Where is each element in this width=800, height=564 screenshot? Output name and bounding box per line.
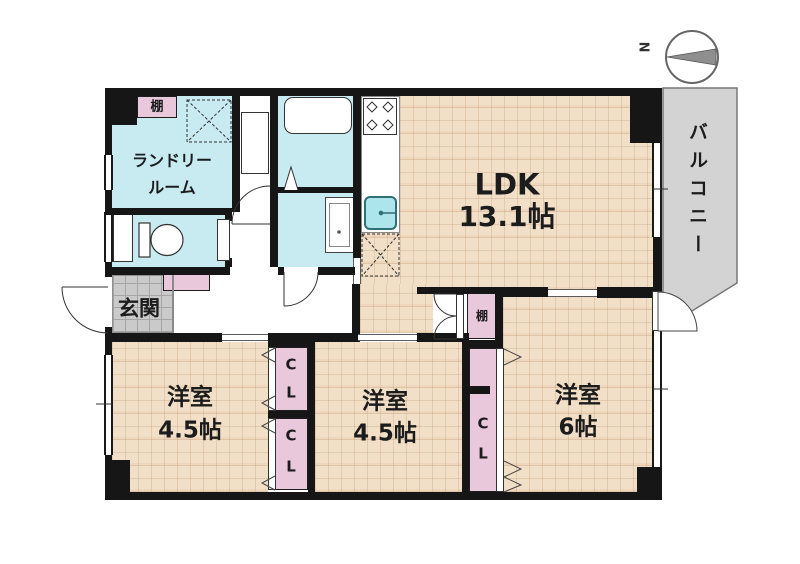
wall (308, 342, 315, 492)
kitchen-sink (364, 196, 397, 230)
window (652, 143, 662, 237)
bedroom-right-size-label: 6帖 (558, 417, 597, 440)
closet-c-label: C (285, 429, 296, 444)
wall (318, 267, 355, 275)
window (104, 355, 113, 455)
ldk-size-label: 13.1帖 (458, 203, 555, 231)
wall (105, 267, 230, 275)
laundry-label-line1: ランドリー (132, 153, 212, 169)
closet-l-label: L (286, 386, 296, 401)
wall (495, 287, 503, 348)
bathtub (284, 97, 352, 134)
wall (462, 386, 490, 394)
bedroom-middle-size-label: 4.5帖 (353, 423, 417, 446)
wall (270, 96, 278, 267)
sliding-door-opening (222, 334, 268, 341)
window (104, 155, 113, 190)
bedroom-right-label: 洋室 (555, 385, 601, 408)
ldk-label: LDK (474, 171, 539, 200)
wall (653, 237, 662, 292)
wall (278, 187, 353, 193)
window (104, 212, 113, 262)
ldk-shelf-label: 棚 (476, 310, 488, 322)
entrance-label: 玄関 (118, 299, 160, 320)
wall (353, 96, 361, 258)
floor-plan: LDK 13.1帖 洋室 4.5帖 洋室 4.5帖 洋室 6帖 ランドリー ルー… (0, 0, 800, 564)
wall (278, 267, 284, 275)
toilet-door (217, 219, 230, 261)
storage-box (241, 112, 269, 174)
closet-door (268, 347, 276, 411)
laundry-shelf-label: 棚 (150, 101, 163, 114)
wall (105, 333, 222, 342)
wall (105, 492, 662, 500)
entrance-door-swing (62, 287, 108, 333)
laundry-label-line2: ルーム (148, 180, 196, 196)
stove (363, 98, 397, 135)
toilet-side-cabinet (113, 213, 133, 262)
bedroom-left-label: 洋室 (167, 387, 213, 410)
wall-corner (105, 88, 137, 125)
vanity-basin (329, 203, 350, 247)
bedroom-middle-label: 洋室 (362, 391, 408, 414)
closet-c-label: C (477, 417, 488, 432)
sliding-door-opening (548, 289, 597, 297)
shelf-doors (456, 294, 464, 339)
wall-corner (637, 467, 662, 492)
wall (462, 340, 503, 348)
closet-door (268, 418, 276, 490)
wall-corner (105, 460, 130, 492)
wall-corner (630, 88, 662, 143)
wall (462, 342, 469, 492)
wall (232, 96, 240, 212)
shoe-cabinet (163, 274, 210, 291)
balcony-label: バルコニー (687, 122, 706, 262)
wall (417, 287, 503, 294)
closet-c-label: C (285, 358, 296, 373)
window (652, 331, 662, 467)
sliding-door-opening (358, 334, 417, 341)
closet-door (496, 348, 504, 492)
compass-north-label: N (639, 42, 654, 53)
balcony-door-swing (658, 292, 697, 331)
room-bedroom-middle (315, 342, 462, 492)
closet-l-label: L (478, 447, 488, 462)
closet-l-label: L (286, 460, 296, 475)
wall (105, 88, 662, 96)
entrance-step (172, 275, 174, 333)
balcony-door (652, 291, 663, 331)
wall (597, 287, 657, 298)
compass-icon (666, 31, 718, 83)
wall (105, 208, 232, 215)
bedroom-left-size-label: 4.5帖 (158, 420, 222, 443)
